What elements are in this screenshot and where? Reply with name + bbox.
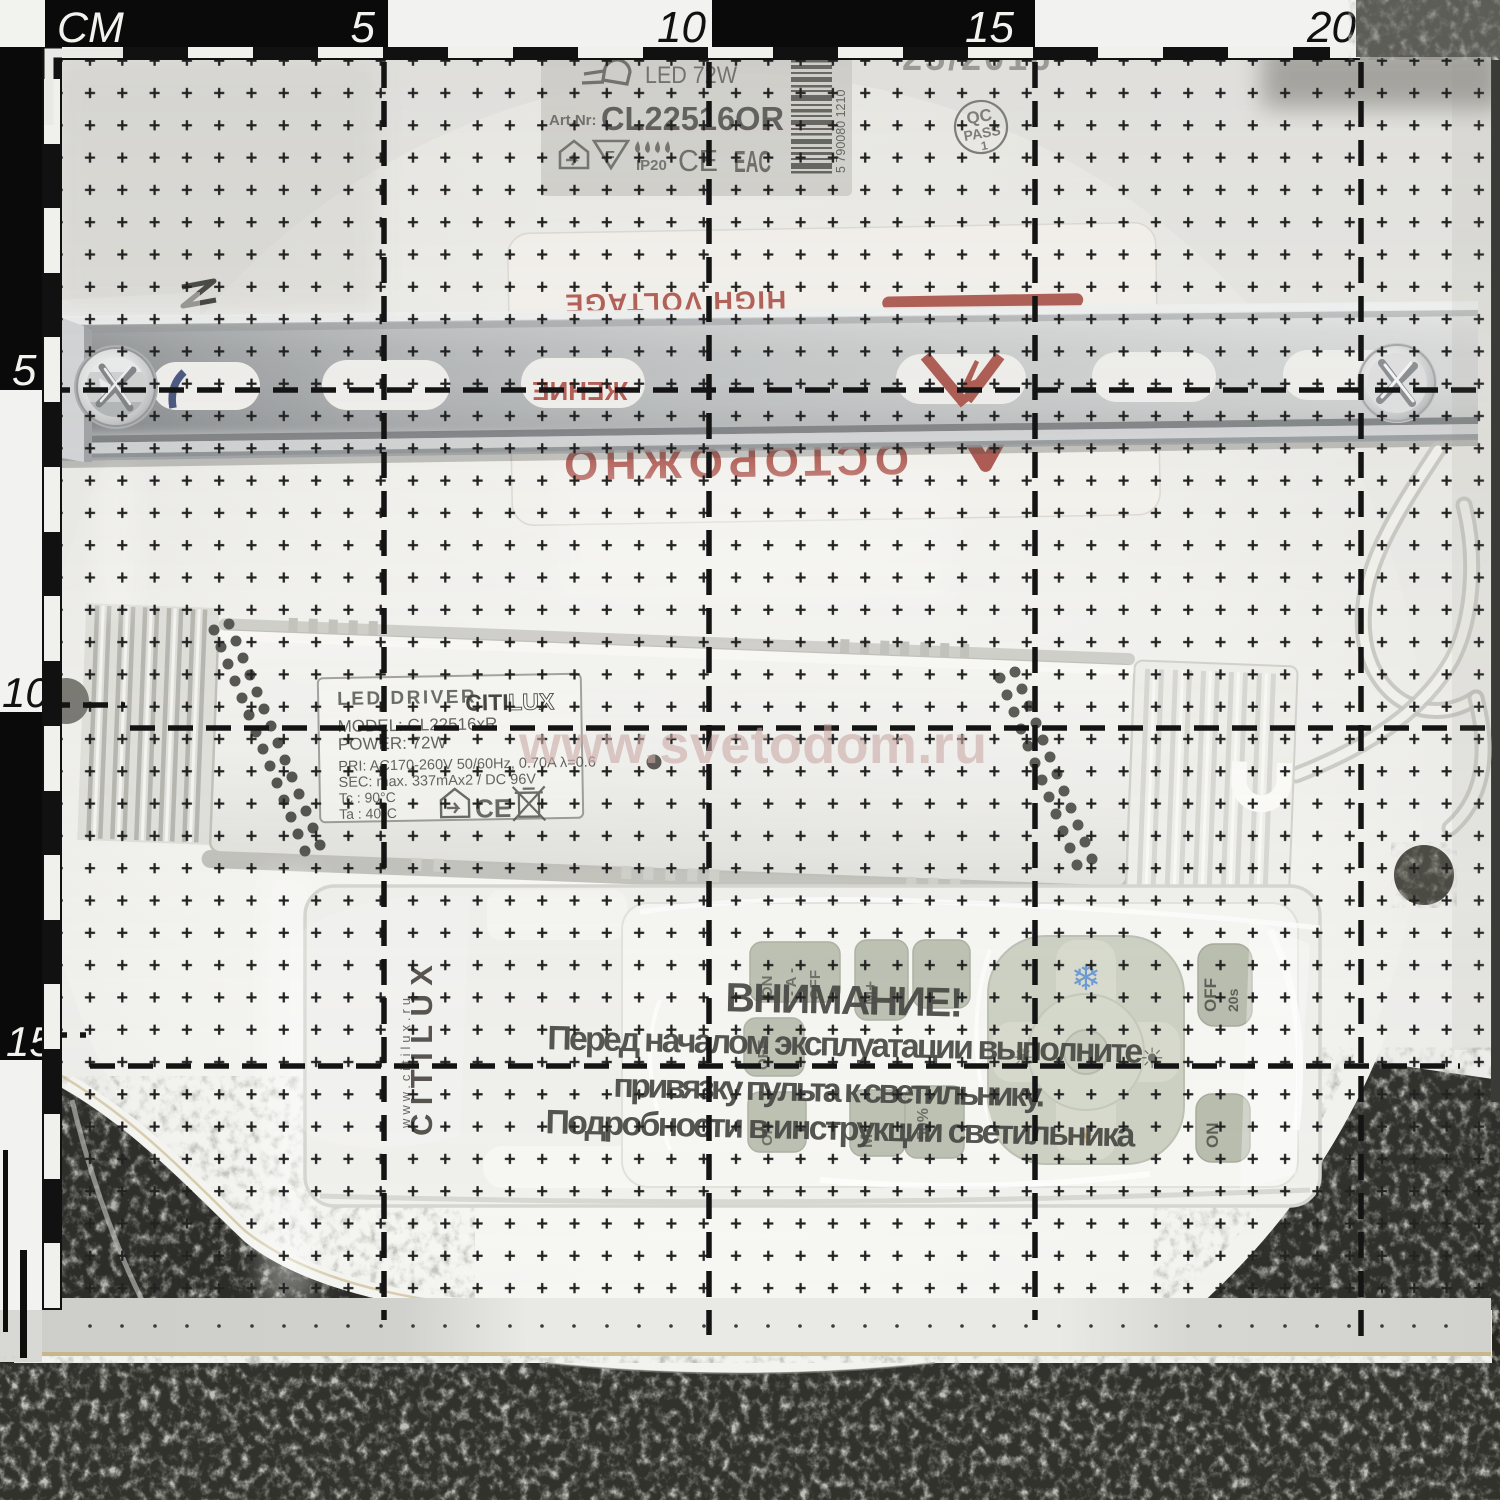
- svg-text:CM: CM: [57, 4, 124, 52]
- svg-text:www.svetodom.ru: www.svetodom.ru: [518, 715, 987, 775]
- svg-text:5: 5: [351, 3, 376, 52]
- svg-text:15: 15: [965, 3, 1014, 52]
- svg-text:10: 10: [657, 3, 706, 52]
- svg-text:20: 20: [1306, 3, 1356, 52]
- svg-text:5: 5: [12, 346, 37, 395]
